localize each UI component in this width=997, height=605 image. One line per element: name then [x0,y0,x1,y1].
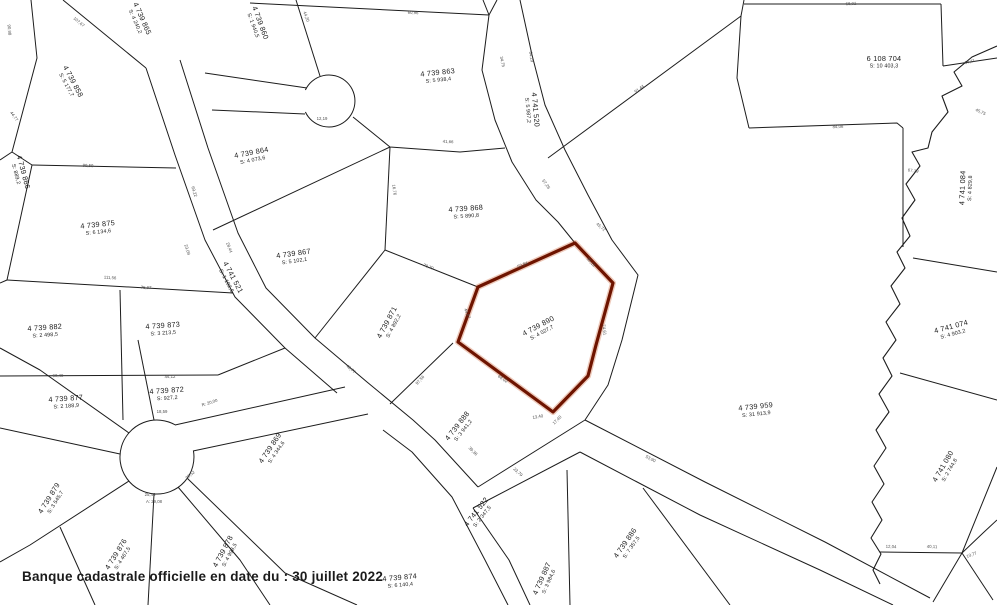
dimension-label: 99,59 [83,163,95,168]
parcel-boundary-line [148,494,154,605]
parcel-boundary-line [0,348,129,433]
parcel-boundary-line [32,165,176,168]
dimension-label: 98,40 [53,373,64,378]
lot-area: S: 4 829,8 [967,175,974,201]
parcel-boundary-line [175,387,345,425]
parcel-label: 4 741 080S: 2 744,8 [930,449,961,487]
lot-number: 6 108 704 [867,54,902,63]
dimension-label: 70,79 [423,262,435,271]
dimension-label: 18,59 [157,409,168,414]
parcel-label: 4 739 860S: 1 940,5 [244,5,271,43]
dimension-label: 84,08 [832,124,844,129]
parcel-boundary-line [205,73,307,88]
lot-area: S: 5 938,4 [425,76,451,85]
dimension-label: 28,44 [225,242,234,254]
dimension-label: 44,12 [165,374,176,379]
dimension-label: 75,87 [141,285,153,291]
parcel-boundary-line [212,110,305,114]
dimension-label: 12,04 [886,544,898,549]
parcel-label: 4 741 074S: 4 903,2 [933,318,971,342]
parcel-label: 4 739 959S: 31 913,9 [738,400,774,419]
dimension-label: 74,61 [601,324,608,336]
parcel-boundary-line [962,553,993,600]
parcel-label: 4 739 866S: 889,2 [8,154,32,192]
parcel-boundary-line [120,290,123,420]
lot-number: 4 739 872 [149,385,184,396]
parcel-boundary-line [250,3,489,15]
dimension-label: 23,09 [183,244,191,256]
dimension-label: 90,98 [7,24,13,36]
parcel-label: 4 739 872S: 927,2 [149,385,185,403]
parcel-boundary-line [0,428,120,454]
dimension-label: 39,36 [467,445,479,457]
parcel-label: 4 739 877S: 2 188,9 [48,393,84,411]
parcel-boundary-line [390,343,453,404]
dimension-label: A: 29,08 [146,499,163,504]
parcel-boundary-line [548,16,741,158]
dimension-label: 64,11 [964,58,976,66]
parcel-label: 4 739 878S: 4 998,5 [211,534,241,572]
parcel-boundary-line [913,258,997,272]
parcel-boundary-line [737,16,749,128]
parcel-boundary-line [962,520,997,553]
lot-area: S: 6 140,4 [387,581,413,589]
cadastral-map-viewport: 4 739 890S: 4 027,74 739 866S: 889,24 73… [0,0,997,605]
dimension-label: 60,96 [408,10,420,16]
parcel-label: 4 739 875S: 6 134,6 [80,218,116,237]
parcel-label: 4 739 879S: 3 545,7 [36,481,68,519]
lot-number: 4 741 084 [957,170,967,205]
parcel-label: 4 739 867S: 5 102,1 [276,246,313,266]
dimension-label: 53,90 [645,454,657,464]
dimension-label: 23,79 [512,466,524,477]
parcel-boundary-line [643,488,730,605]
selected-parcel-label: 4 739 890S: 4 027,7 [521,314,559,344]
parcel-label: 4 739 871S: 4 892,2 [375,305,405,343]
dimension-label: 13,40 [532,413,544,420]
lot-area: S: 3 213,5 [150,330,176,338]
parcel-boundary-line [749,123,903,128]
parcel-boundary-line [585,420,930,598]
stream-line [871,46,997,584]
parcel-boundary-line [520,0,638,420]
parcel-boundary-line [900,373,997,400]
parcel-boundary-line [741,0,744,16]
parcel-boundary-line [580,452,893,605]
dimension-label: 69,22 [190,186,198,198]
parcel-label: 4 739 887S: 3 984,6 [530,561,559,599]
parcel-boundary-line [60,527,95,605]
lot-area: S: 5 890,8 [453,213,479,221]
parcel-boundary-line [483,0,489,15]
lot-area: S: 10 403,3 [870,64,899,70]
dimension-label: 97,56 [414,374,425,386]
dimension-label: 12,19 [317,116,328,121]
dimension-label: 111,56 [104,275,117,281]
parcel-label: 4 739 863S: 5 938,4 [420,66,456,85]
cul-de-sac-outline [305,75,355,127]
parcel-boundary-line [933,467,997,602]
dimension-label: 16,76 [391,184,398,196]
parcel-label: 4 739 858S: 5 177,7 [55,64,85,102]
lot-area: S: 927,2 [157,395,178,402]
parcel-boundary-line [0,375,218,376]
parcel-boundary-line [353,117,505,152]
dimension-label: 10,77 [966,550,978,559]
dimension-label: 34,75 [499,56,506,68]
dimension-label: R: 20,00 [201,397,219,407]
dimension-label: 44,77 [9,110,20,122]
dimension-label: 91,44 [633,83,645,94]
parcel-boundary-line [941,4,943,66]
parcel-label: 4 739 865S: 4 240,2 [125,1,154,39]
dimension-label: 45,72 [595,221,607,232]
parcel-label: 4 741 084S: 4 829,8 [957,170,974,205]
lot-area: S: 2 188,9 [53,403,79,411]
parcel-boundary-line [567,470,570,605]
parcel-boundary-line [138,340,154,420]
parcel-label: 4 739 886S: 7 357,5 [611,526,644,564]
parcel-boundary-line [880,552,962,553]
parcel-label: 4 739 888S: 3 941,2 [443,409,477,446]
parcel-label: 4 739 874S: 6 140,4 [382,571,418,590]
parcel-label: 4 739 864S: 4 073,6 [233,145,270,167]
dimension-label: 45,75 [975,107,987,116]
dimension-label: 44,20 [302,11,311,23]
dimension-label: 40,11 [927,544,938,549]
parcel-boundary-line [385,147,390,250]
dimension-label: 57,26 [541,178,552,190]
lot-area: S: 6 134,6 [85,228,111,237]
parcel-boundary-line [315,250,385,338]
parcel-label: 4 739 868S: 5 890,8 [448,203,484,221]
dimension-label: 67,19 [908,167,920,174]
dimension-label: 64,29 [528,51,535,63]
lot-area: S: 5 987,2 [523,97,531,123]
parcel-boundary-line [0,0,37,160]
parcel-label: 4 739 873S: 3 213,5 [145,320,181,338]
cadastral-map-canvas[interactable]: 4 739 890S: 4 027,74 739 866S: 889,24 73… [0,0,997,605]
parcel-label: 4 741 522S: 2 347,5 [462,495,496,532]
parcel-boundary-line [218,348,285,375]
lot-area: S: 2 498,5 [32,332,58,340]
parcel-label: 4 739 882S: 2 498,5 [27,322,63,340]
dimension-label: 41,66 [443,139,455,145]
dimension-label: 36,52 [184,469,196,480]
dimension-label: 48,77 [345,363,357,374]
parcel-boundary-line [187,478,357,605]
dimension-label: 17,40 [551,414,563,426]
cul-de-sac-outline [120,420,194,494]
parcel-label: 4 741 520S: 5 987,2 [523,92,542,128]
dimension-label: 25,46 [145,492,156,497]
map-date-banner: Banque cadastrale officielle en date du … [22,569,383,584]
dimension-label: 68,01 [845,1,857,6]
parcel-label: 6 108 704S: 10 403,3 [867,54,902,70]
